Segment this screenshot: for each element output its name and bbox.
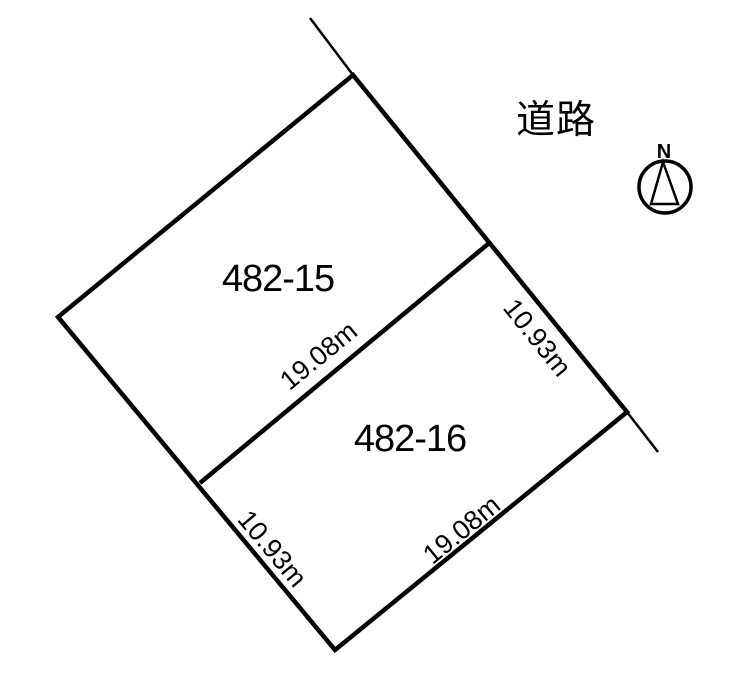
compass bbox=[639, 161, 691, 213]
plot-plan-svg: N 道路 482-15 482-16 19.08m 10.93m 19.08m … bbox=[0, 0, 740, 682]
road-label: 道路 bbox=[516, 99, 596, 142]
parcel-482-15-label: 482-15 bbox=[222, 258, 334, 300]
compass-north-label: N bbox=[657, 141, 671, 163]
dimension-southwest-label: 10.93m bbox=[232, 505, 313, 593]
parcel-482-16-label: 482-16 bbox=[354, 418, 466, 460]
road-boundary-extension-bottom bbox=[627, 412, 658, 452]
plot-plan: N 道路 482-15 482-16 19.08m 10.93m 19.08m … bbox=[0, 0, 740, 682]
road-boundary-extension-top bbox=[310, 18, 353, 75]
compass-needle-icon bbox=[651, 162, 678, 204]
dimension-southeast-label: 19.08m bbox=[417, 490, 506, 570]
